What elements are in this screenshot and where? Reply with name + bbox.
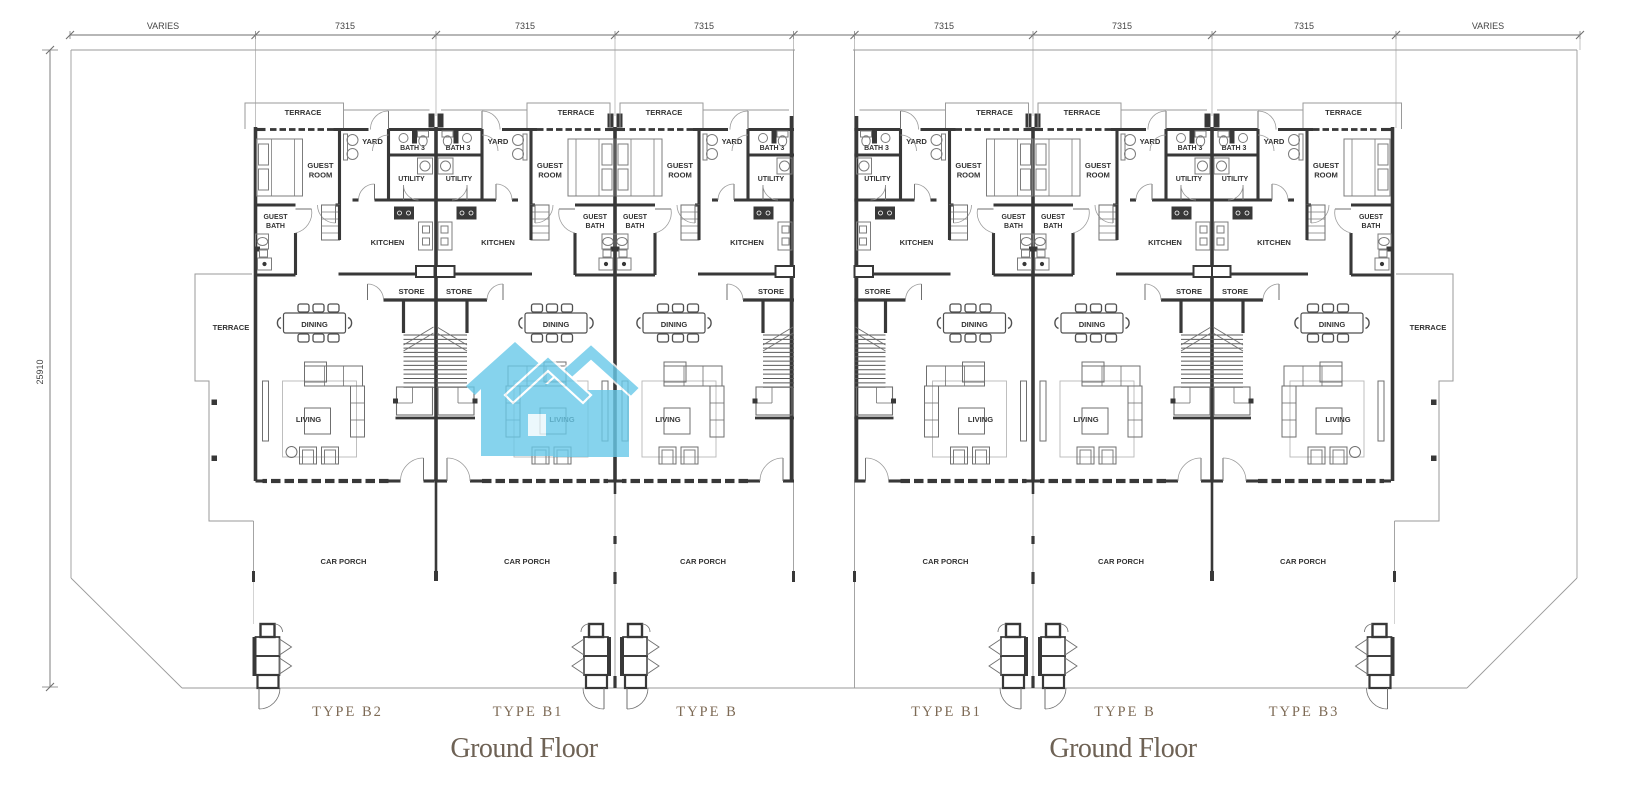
svg-text:TERRACE: TERRACE	[1325, 108, 1362, 117]
svg-text:LIVING: LIVING	[655, 415, 680, 424]
svg-text:VARIES: VARIES	[147, 21, 179, 31]
svg-text:25910: 25910	[35, 359, 45, 384]
svg-text:GUEST: GUEST	[537, 161, 564, 170]
svg-text:KITCHEN: KITCHEN	[1148, 238, 1182, 247]
svg-text:TERRACE: TERRACE	[1410, 323, 1447, 332]
svg-text:KITCHEN: KITCHEN	[481, 238, 515, 247]
svg-text:UTILITY: UTILITY	[758, 176, 785, 183]
svg-text:TERRACE: TERRACE	[976, 108, 1013, 117]
svg-text:DINING: DINING	[1319, 320, 1346, 329]
svg-text:YARD: YARD	[488, 137, 509, 146]
svg-text:DINING: DINING	[1079, 320, 1106, 329]
svg-text:GUEST: GUEST	[1041, 214, 1066, 221]
svg-text:LIVING: LIVING	[1073, 415, 1098, 424]
svg-text:GUEST: GUEST	[263, 214, 288, 221]
svg-text:UTILITY: UTILITY	[398, 176, 425, 183]
svg-text:UTILITY: UTILITY	[1176, 176, 1203, 183]
svg-text:CAR PORCH: CAR PORCH	[321, 557, 367, 566]
svg-text:BATH: BATH	[586, 223, 605, 230]
svg-text:TERRACE: TERRACE	[1064, 108, 1101, 117]
svg-text:LIVING: LIVING	[296, 415, 321, 424]
svg-text:CAR PORCH: CAR PORCH	[923, 557, 969, 566]
svg-text:GUEST: GUEST	[583, 214, 608, 221]
svg-text:TERRACE: TERRACE	[213, 323, 250, 332]
svg-text:7315: 7315	[934, 21, 954, 31]
svg-text:BATH: BATH	[266, 223, 285, 230]
svg-text:ROOM: ROOM	[1314, 171, 1338, 180]
svg-text:YARD: YARD	[362, 137, 383, 146]
svg-text:GUEST: GUEST	[307, 161, 334, 170]
svg-text:DINING: DINING	[961, 320, 988, 329]
svg-text:TERRACE: TERRACE	[646, 108, 683, 117]
svg-text:ROOM: ROOM	[957, 171, 981, 180]
svg-text:7315: 7315	[1294, 21, 1314, 31]
svg-text:GUEST: GUEST	[1313, 161, 1340, 170]
svg-text:ROOM: ROOM	[1086, 171, 1110, 180]
svg-text:GUEST: GUEST	[1359, 214, 1384, 221]
svg-text:STORE: STORE	[1222, 287, 1248, 296]
svg-text:LIVING: LIVING	[1325, 415, 1350, 424]
svg-text:BATH: BATH	[626, 223, 645, 230]
svg-text:DINING: DINING	[543, 320, 570, 329]
svg-text:TYPE B1: TYPE B1	[911, 704, 982, 720]
svg-text:YARD: YARD	[722, 137, 743, 146]
svg-text:STORE: STORE	[864, 287, 890, 296]
svg-text:DINING: DINING	[661, 320, 688, 329]
svg-text:YARD: YARD	[906, 137, 927, 146]
svg-text:Ground Floor: Ground Floor	[1049, 733, 1197, 764]
svg-text:KITCHEN: KITCHEN	[371, 238, 405, 247]
svg-text:GUEST: GUEST	[1001, 214, 1026, 221]
svg-text:YARD: YARD	[1140, 137, 1161, 146]
svg-text:7315: 7315	[335, 21, 355, 31]
svg-text:TYPE B1: TYPE B1	[493, 704, 564, 720]
svg-text:KITCHEN: KITCHEN	[1257, 238, 1291, 247]
svg-text:CAR PORCH: CAR PORCH	[1280, 557, 1326, 566]
svg-text:TERRACE: TERRACE	[558, 108, 595, 117]
svg-text:UTILITY: UTILITY	[864, 176, 891, 183]
svg-text:YARD: YARD	[1264, 137, 1285, 146]
svg-text:Ground Floor: Ground Floor	[450, 733, 598, 764]
svg-text:KITCHEN: KITCHEN	[730, 238, 764, 247]
svg-text:TYPE B2: TYPE B2	[312, 704, 383, 720]
svg-text:GUEST: GUEST	[1085, 161, 1112, 170]
svg-text:TYPE B: TYPE B	[676, 704, 738, 720]
svg-text:VARIES: VARIES	[1472, 21, 1504, 31]
svg-text:STORE: STORE	[1176, 287, 1202, 296]
svg-text:GUEST: GUEST	[667, 161, 694, 170]
svg-text:CAR PORCH: CAR PORCH	[680, 557, 726, 566]
svg-text:GUEST: GUEST	[623, 214, 648, 221]
svg-text:7315: 7315	[515, 21, 535, 31]
svg-text:KITCHEN: KITCHEN	[900, 238, 934, 247]
svg-text:STORE: STORE	[758, 287, 784, 296]
svg-text:ROOM: ROOM	[668, 171, 692, 180]
svg-text:BATH: BATH	[1044, 223, 1063, 230]
svg-text:TYPE B: TYPE B	[1094, 704, 1156, 720]
svg-text:CAR PORCH: CAR PORCH	[1098, 557, 1144, 566]
svg-text:LIVING: LIVING	[968, 415, 993, 424]
svg-text:TYPE B3: TYPE B3	[1269, 704, 1340, 720]
svg-text:BATH: BATH	[1362, 223, 1381, 230]
svg-text:CAR PORCH: CAR PORCH	[504, 557, 550, 566]
svg-text:7315: 7315	[1112, 21, 1132, 31]
svg-text:DINING: DINING	[301, 320, 328, 329]
svg-text:STORE: STORE	[398, 287, 424, 296]
svg-text:STORE: STORE	[446, 287, 472, 296]
svg-text:ROOM: ROOM	[538, 171, 562, 180]
svg-text:ROOM: ROOM	[309, 171, 333, 180]
svg-text:BATH: BATH	[1004, 223, 1023, 230]
svg-text:GUEST: GUEST	[955, 161, 982, 170]
svg-text:7315: 7315	[694, 21, 714, 31]
svg-text:UTILITY: UTILITY	[446, 176, 473, 183]
svg-text:UTILITY: UTILITY	[1222, 176, 1249, 183]
svg-text:TERRACE: TERRACE	[285, 108, 322, 117]
